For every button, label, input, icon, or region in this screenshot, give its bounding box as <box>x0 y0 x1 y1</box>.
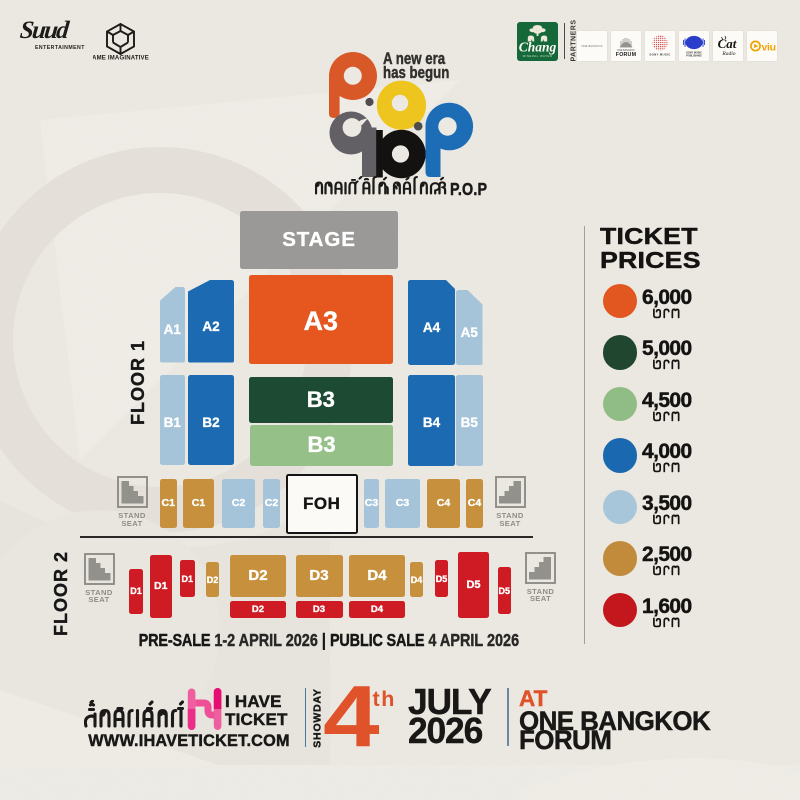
svg-text:ONE BANGKOK: ONE BANGKOK <box>581 44 602 48</box>
svg-text:viu: viu <box>762 41 776 53</box>
svg-text:FORUM: FORUM <box>616 52 637 58</box>
svg-text:AME IMAGINATIVE: AME IMAGINATIVE <box>93 56 149 62</box>
svg-text:MINERAL WATER: MINERAL WATER <box>522 54 552 58</box>
svg-text:SONY MUSIC: SONY MUSIC <box>649 53 671 57</box>
svg-text:Radio: Radio <box>721 51 735 57</box>
svg-text:Cat: Cat <box>718 36 737 51</box>
svg-text:PUBLISHING: PUBLISHING <box>686 55 701 58</box>
svg-text:Chang: Chang <box>518 39 556 54</box>
